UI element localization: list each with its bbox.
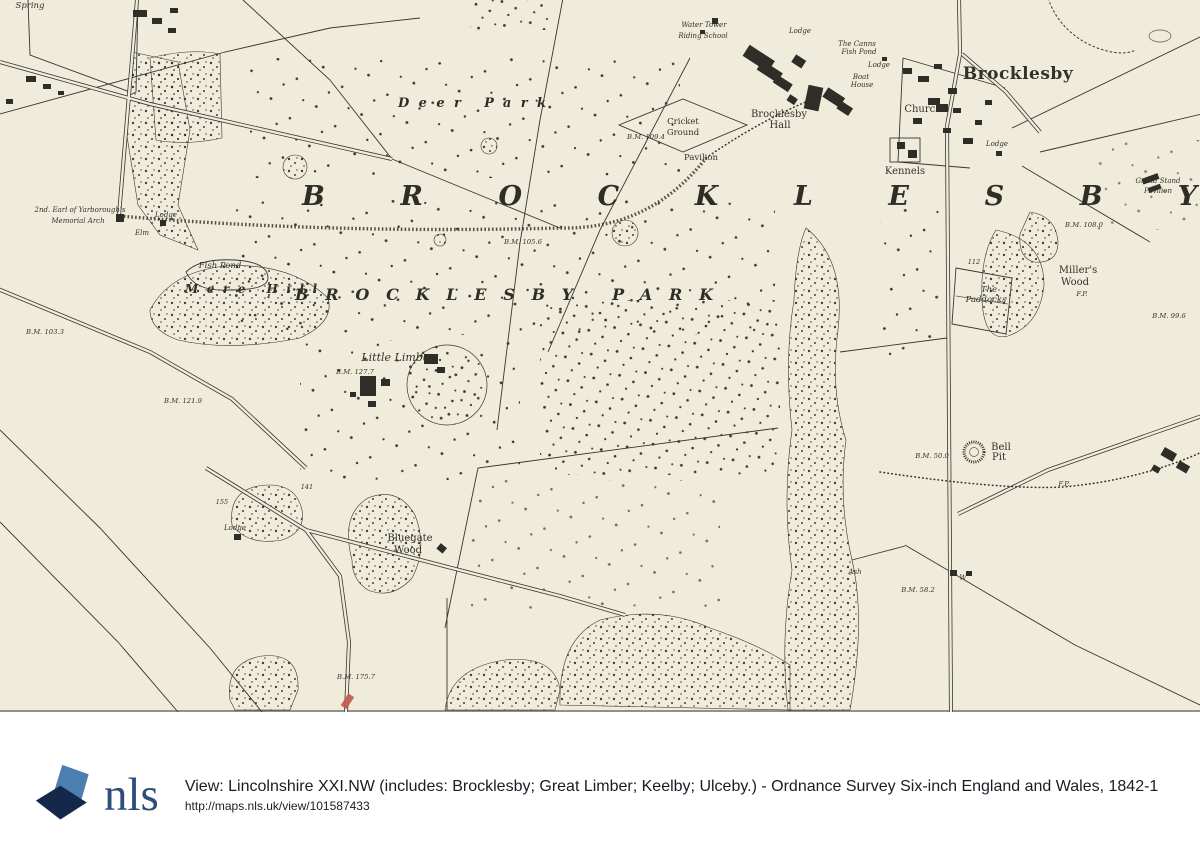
map-label: Grand Stand [1135, 177, 1181, 185]
map-label: B.M. 103.3 [25, 328, 64, 336]
map-label: B.M. 175.7 [336, 673, 376, 681]
map-label: Fish Pond [198, 261, 242, 271]
map-label: Lodge [154, 211, 177, 219]
map-label: B.M. 50.0 [914, 452, 949, 460]
map-label: B.M. 121.9 [163, 397, 203, 405]
map-label: Brocklesby [751, 109, 807, 120]
map-label: Boat [852, 73, 870, 81]
memorial-arch-symbol [116, 214, 124, 222]
map-label: Ash [847, 568, 861, 576]
map-label: B.M. 105.6 [503, 238, 543, 246]
map-label: Fish Pond [840, 48, 877, 56]
map-label: Elm [134, 229, 149, 237]
page: BROCKLESBY BROCKLESBY PARK Deer Park Mer… [0, 0, 1200, 848]
map-label: Church [904, 104, 942, 115]
map-svg: BROCKLESBY BROCKLESBY PARK Deer Park Mer… [0, 0, 1200, 712]
map-label: Wood [1061, 277, 1090, 288]
nls-logo[interactable]: nls [34, 764, 159, 826]
map-label: Spring [16, 1, 46, 11]
map-image: BROCKLESBY BROCKLESBY PARK Deer Park Mer… [0, 0, 1200, 712]
map-label: 112 [968, 258, 980, 266]
red-revision-mark [341, 693, 354, 709]
map-label: Pavilion [1143, 187, 1172, 195]
map-label: 2nd. Earl of Yarborough's [34, 206, 126, 214]
footer-text-block: View: Lincolnshire XXI.NW (includes: Bro… [185, 778, 1158, 813]
map-label: 155 [216, 498, 228, 506]
bell-pit-ring [964, 442, 984, 462]
map-label: The [981, 285, 997, 295]
map-label: Wood [394, 545, 423, 556]
map-label: Lodge [223, 524, 246, 532]
map-label: Pit [992, 452, 1006, 463]
map-label: Riding School [677, 32, 727, 40]
map-label: Lodge [788, 27, 811, 35]
map-label: Lodge [985, 140, 1008, 148]
map-label: Lodge [867, 61, 890, 69]
map-label: Hall [769, 120, 790, 131]
map-label: B.M. 109.4 [626, 133, 665, 141]
map-label: F.P. [1057, 480, 1069, 488]
map-label: 141 [301, 483, 313, 491]
map-label: House [850, 81, 874, 89]
map-label: Ground [667, 128, 700, 138]
nls-logo-mark [34, 764, 100, 826]
map-label: B.M. 99.6 [1151, 312, 1186, 320]
map-label: Memorial Arch [50, 217, 104, 225]
map-label: Water Tower [681, 21, 727, 29]
map-label: Little Limber [360, 351, 435, 364]
view-url-link[interactable]: http://maps.nls.uk/view/101587433 [185, 799, 1158, 813]
park-title: BROCKLESBY PARK [294, 285, 714, 304]
map-label: B.M. 58.2 [900, 586, 935, 594]
map-label: B.M. 108.0 [1064, 221, 1104, 229]
map-label: Miller's [1059, 265, 1097, 276]
map-label: Bluegate [387, 533, 432, 544]
map-label: F.P. [1075, 290, 1087, 298]
map-label: Paddocks [965, 295, 1007, 305]
view-title: View: Lincolnshire XXI.NW (includes: Bro… [185, 778, 1158, 796]
map-label: Pavilion [684, 153, 718, 163]
footer: nls View: Lincolnshire XXI.NW (includes:… [0, 712, 1200, 848]
nls-logo-text: nls [104, 772, 159, 819]
map-label: The Canns [838, 40, 876, 48]
map-label: W [959, 574, 967, 582]
map-label: Kennels [885, 166, 925, 177]
map-label: Cricket [667, 117, 699, 127]
map-label: Brocklesby [963, 64, 1074, 84]
deer-park-title: Deer Park [397, 96, 546, 111]
map-label: B.M. 127.7 [335, 368, 375, 376]
